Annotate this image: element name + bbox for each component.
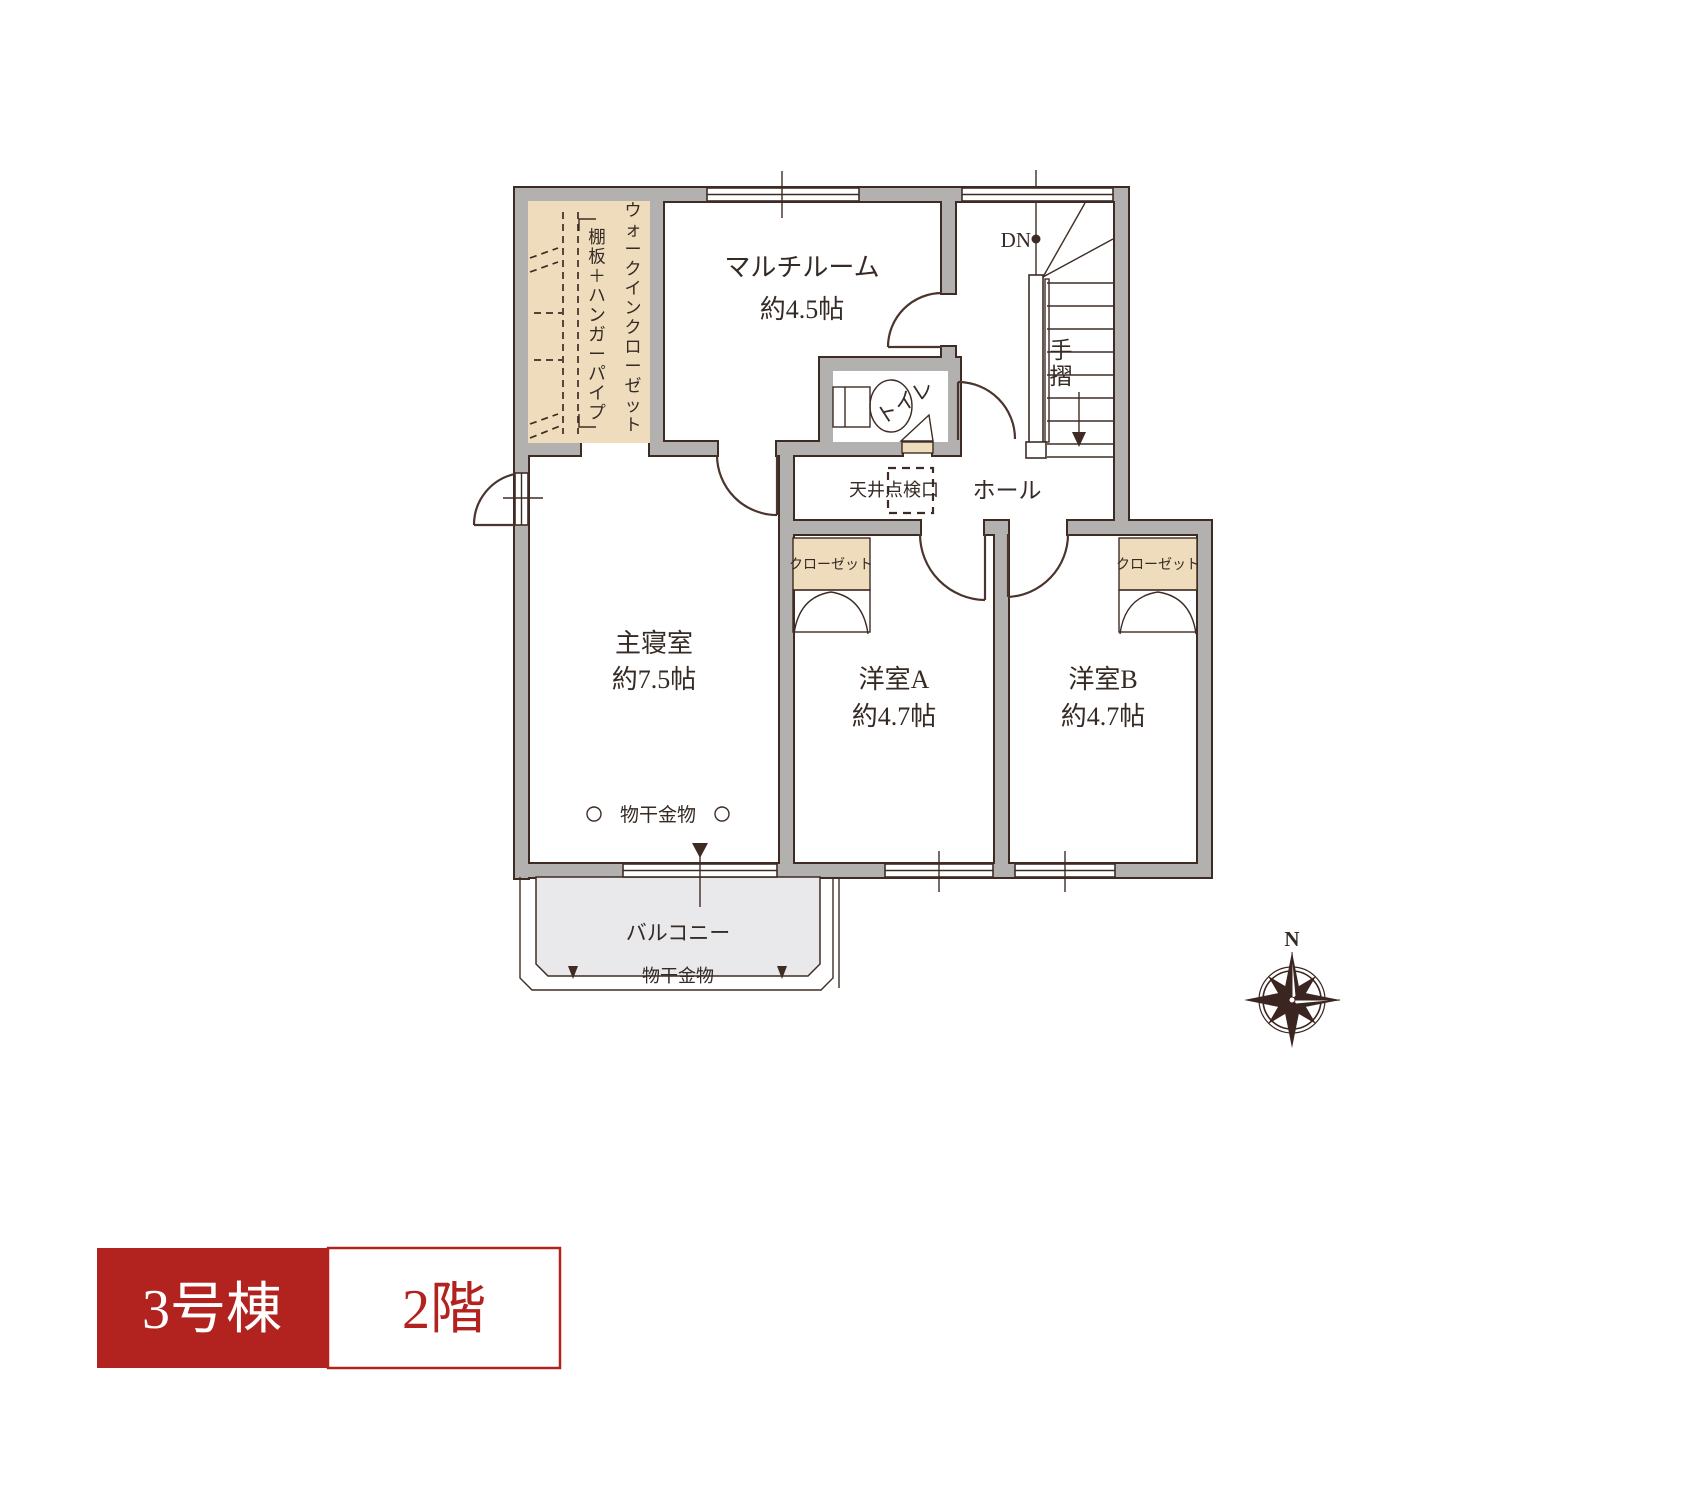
toilet-door-arc xyxy=(958,382,1015,439)
master-bedroom-name: 主寝室 xyxy=(615,629,693,658)
stairs-dn-dot xyxy=(1032,235,1041,244)
balcony-laundry-label: 物干金物 xyxy=(642,966,714,986)
multi-room: マルチルーム 約4.5帖 xyxy=(724,253,942,347)
room-a-door-arc xyxy=(920,534,985,600)
wic-name-label: ウォークインクローゼット xyxy=(625,201,642,435)
stairs-handrail-label: 手摺 xyxy=(1050,338,1073,389)
building-label: 3号棟 xyxy=(142,1279,282,1341)
multi-room-size: 約4.5帖 xyxy=(760,295,845,324)
casement-window-arc xyxy=(474,474,515,525)
floor-label: 2階 xyxy=(402,1279,486,1341)
staircase: DN 手摺 xyxy=(1001,170,1113,458)
floor-plan-drawing: 棚板＋ハンガーパイプ ウォークインクローゼット マルチルーム 約4.5帖 トイレ… xyxy=(0,0,1682,1502)
toilet-room: トイレ xyxy=(833,371,1015,453)
stairs-dn-label: DN xyxy=(1001,228,1031,252)
room-a-size: 約4.7帖 xyxy=(852,702,937,731)
hall-label: ホール xyxy=(973,478,1042,503)
walk-in-closet: 棚板＋ハンガーパイプ ウォークインクローゼット xyxy=(528,201,650,443)
multi-room-name: マルチルーム xyxy=(724,253,879,282)
stairs-handrail-post xyxy=(1026,442,1046,458)
master-laundry-label: 物干金物 xyxy=(620,804,696,826)
laundry-hook-icon xyxy=(715,807,729,821)
room-b-door-arc xyxy=(1008,534,1068,597)
unit-floor-label: 3号棟 2階 xyxy=(97,1248,560,1368)
multi-room-door-arc xyxy=(888,293,942,347)
wic-shelf-label: 棚板＋ハンガーパイプ xyxy=(588,227,606,423)
room-a-closet-doors xyxy=(793,590,870,632)
master-bedroom-size: 約7.5帖 xyxy=(612,665,697,694)
floor-plan-page: 棚板＋ハンガーパイプ ウォークインクローゼット マルチルーム 約4.5帖 トイレ… xyxy=(0,0,1682,1502)
hall: 天井点検口 ホール xyxy=(849,468,1042,513)
stairs-down-arrow-icon xyxy=(1072,392,1086,447)
laundry-hook-icon xyxy=(587,807,601,821)
room-b-closet-label: クローゼット xyxy=(1116,557,1200,573)
balcony: バルコニー 物干金物 xyxy=(520,877,839,990)
western-room-b: クローゼット 洋室B 約4.7帖 xyxy=(1008,534,1200,731)
toilet-threshold xyxy=(902,442,933,453)
stairs-handrail xyxy=(1029,275,1043,445)
room-b-closet-doors xyxy=(1119,590,1197,632)
room-b-name: 洋室B xyxy=(1068,665,1137,694)
western-room-a: クローゼット 洋室A 約4.7帖 xyxy=(789,534,985,731)
balcony-label: バルコニー xyxy=(626,921,731,945)
compass-rose-icon: N xyxy=(1244,927,1340,1048)
compass-north-label: N xyxy=(1284,927,1299,951)
ceiling-hatch-label: 天井点検口 xyxy=(849,480,939,500)
room-b-size: 約4.7帖 xyxy=(1061,702,1146,731)
master-bedroom: 主寝室 約7.5帖 物干金物 xyxy=(587,455,777,858)
master-bedroom-door-arc xyxy=(717,455,777,515)
room-a-name: 洋室A xyxy=(859,665,930,694)
room-a-closet-label: クローゼット xyxy=(789,557,873,573)
